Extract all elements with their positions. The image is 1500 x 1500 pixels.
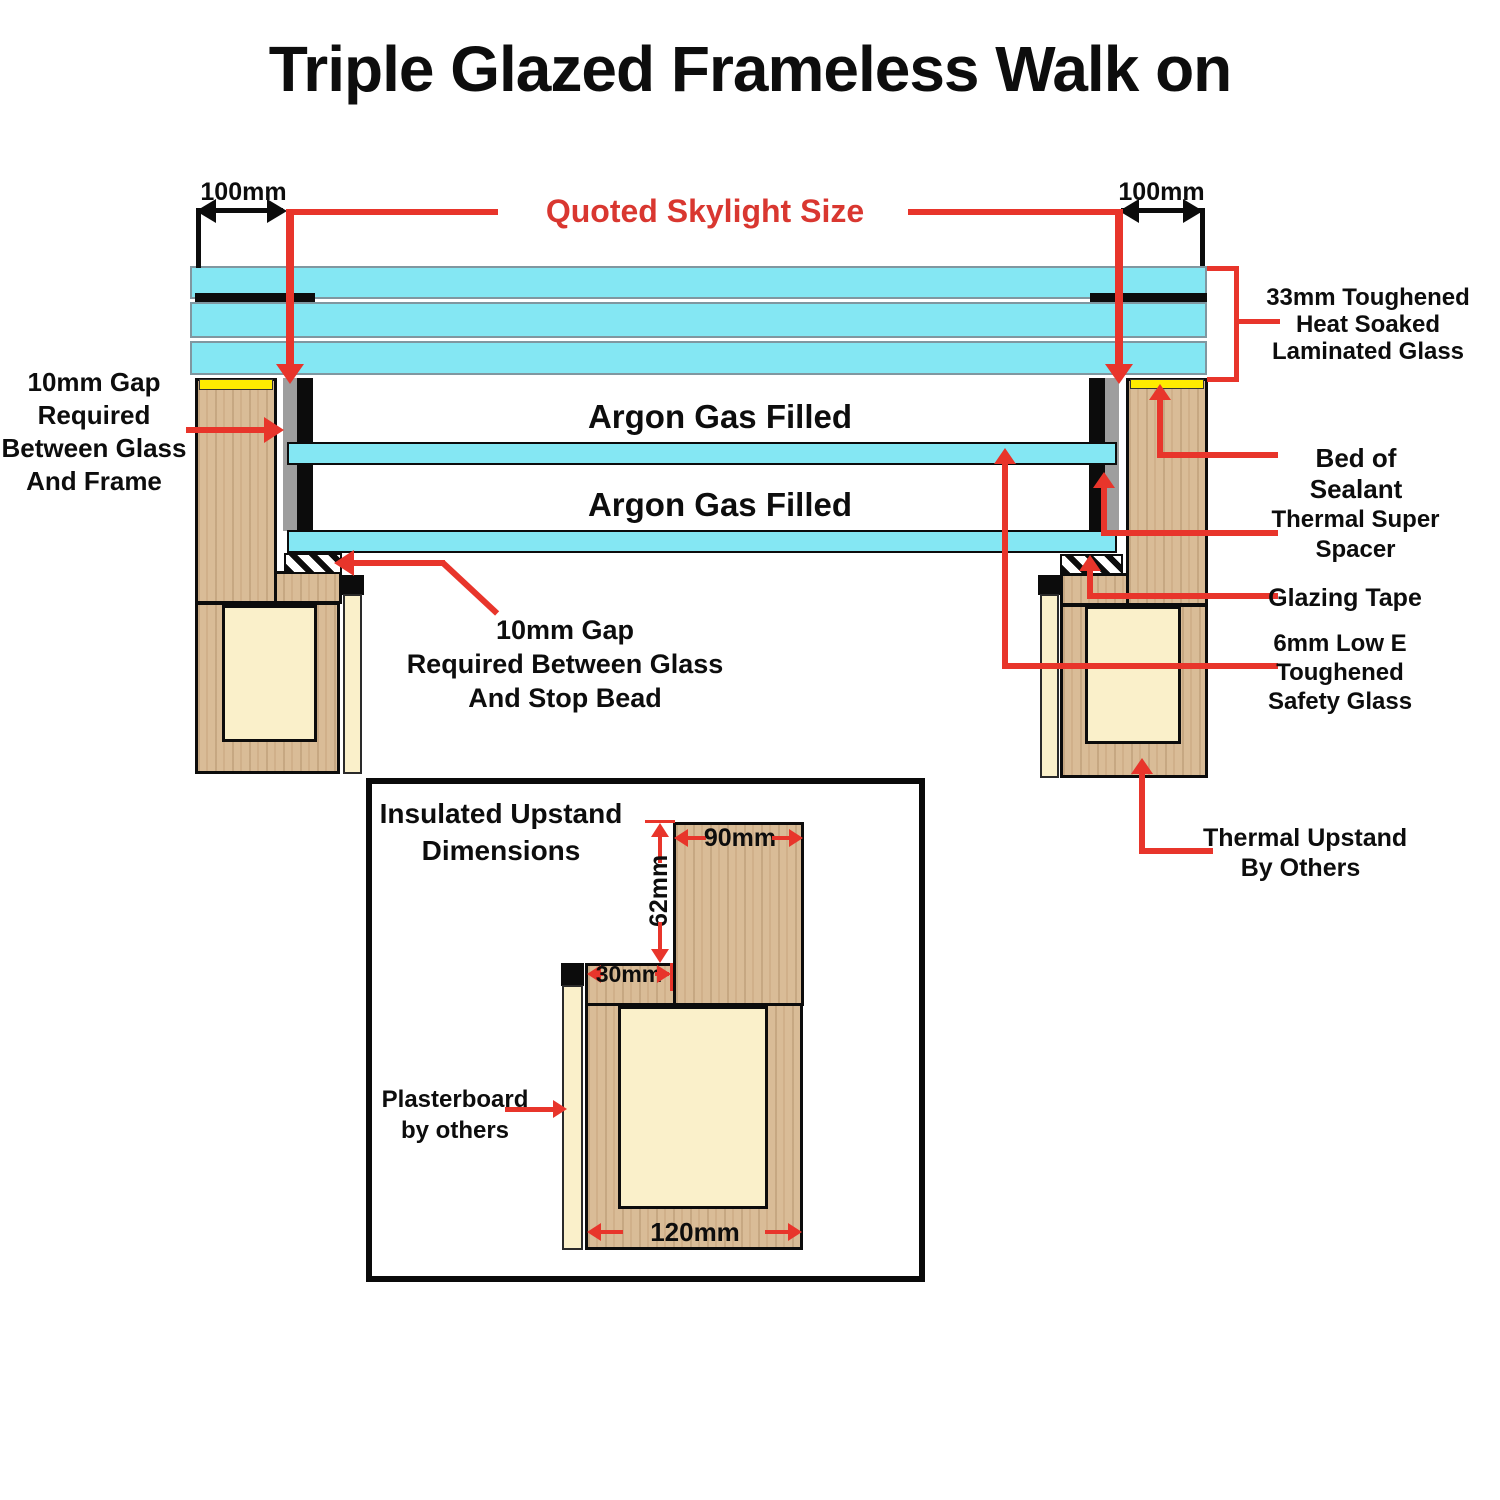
glazing-tape-leader-line bbox=[1087, 593, 1278, 599]
upstand-column-right bbox=[1126, 378, 1208, 606]
quoted-size-line-left bbox=[289, 209, 498, 215]
quoted-size-line-right bbox=[908, 209, 1119, 215]
dim-100-left-tick bbox=[196, 208, 201, 268]
inset-120-arrowhead-right bbox=[788, 1223, 802, 1241]
inset-90-label: 90mm bbox=[699, 824, 781, 853]
middle-glass-pane bbox=[287, 442, 1117, 465]
insulation-left bbox=[222, 605, 317, 742]
glazing-tape-label: Glazing Tape bbox=[1265, 584, 1425, 613]
laminated-pane-1 bbox=[190, 266, 1207, 299]
gap-bead-arrowhead bbox=[334, 550, 354, 576]
inset-plasterboard-arrowhead bbox=[553, 1100, 567, 1118]
dim-100-left-arrowhead-right bbox=[267, 199, 287, 223]
laminated-bracket-vertical bbox=[1234, 266, 1239, 382]
sealant-label: Bed of Sealant bbox=[1276, 443, 1436, 505]
glass-step-right bbox=[1090, 293, 1207, 302]
spacer-arrow-vertical bbox=[1101, 486, 1107, 534]
sealant-leader-line bbox=[1157, 452, 1278, 458]
laminated-pane-2 bbox=[190, 302, 1207, 338]
low-e-arrow-vertical bbox=[1002, 462, 1008, 668]
argon-label-top: Argon Gas Filled bbox=[540, 398, 900, 436]
thermal-upstand-arrow-vertical bbox=[1139, 772, 1145, 854]
inset-30-arrowhead-right bbox=[657, 965, 671, 983]
skylight-cross-section-diagram: Triple Glazed Frameless Walk on Argon Ga… bbox=[0, 0, 1500, 1500]
low-e-leader-line bbox=[1002, 663, 1278, 669]
thermal-upstand-label: Thermal Upstand By Others bbox=[1203, 823, 1398, 883]
gap-frame-arrow-line bbox=[186, 427, 266, 433]
edge-seal-right-upper bbox=[1089, 378, 1105, 442]
laminated-bracket-tick-top bbox=[1207, 266, 1239, 271]
inset-62-label: 62mm bbox=[645, 857, 673, 927]
sealant-arrow-vertical bbox=[1157, 398, 1163, 456]
spacer-leader-line bbox=[1101, 530, 1278, 536]
gap-bead-label: 10mm Gap Required Between Glass And Stop… bbox=[400, 613, 730, 715]
inset-90-arrowhead-right bbox=[789, 829, 803, 847]
stop-bead-right bbox=[1038, 575, 1061, 595]
laminated-pane-3 bbox=[190, 341, 1207, 375]
stop-bead-left bbox=[341, 575, 364, 595]
inset-62-line-lower bbox=[658, 922, 662, 950]
plasterboard-left bbox=[343, 594, 362, 774]
gap-bead-arrow-diagonal bbox=[441, 561, 499, 616]
laminated-label: 33mm Toughened Heat Soaked Laminated Gla… bbox=[1258, 284, 1478, 365]
upstand-column-left bbox=[195, 378, 277, 604]
quoted-drop-arrowhead-left bbox=[276, 364, 304, 384]
spacer-label: Thermal Super Spacer bbox=[1268, 505, 1443, 565]
inset-plasterboard-arrow-line bbox=[505, 1107, 557, 1112]
glass-step-left bbox=[195, 293, 315, 302]
laminated-bracket-tick-bottom bbox=[1207, 377, 1239, 382]
quoted-drop-line-left bbox=[286, 209, 294, 366]
gap-frame-label: 10mm Gap Required Between Glass And Fram… bbox=[0, 366, 188, 498]
inset-insulation bbox=[618, 1006, 768, 1209]
sealant-bed-left bbox=[199, 379, 273, 390]
gap-bead-arrow-line bbox=[352, 560, 445, 566]
thermal-upstand-leader-line bbox=[1139, 848, 1213, 854]
inset-plasterboard-label: Plasterboard by others bbox=[378, 1084, 532, 1146]
edge-seal-left-upper bbox=[297, 378, 313, 442]
inset-stop-bead bbox=[561, 963, 584, 986]
page-title: Triple Glazed Frameless Walk on bbox=[0, 34, 1500, 104]
quoted-size-label: Quoted Skylight Size bbox=[495, 193, 915, 230]
inset-120-label: 120mm bbox=[610, 1217, 780, 1248]
quoted-drop-line-right bbox=[1115, 209, 1123, 366]
bottom-glass-pane bbox=[287, 530, 1117, 553]
dim-100-right-tick bbox=[1200, 208, 1205, 266]
plasterboard-right bbox=[1040, 594, 1059, 778]
argon-label-bottom: Argon Gas Filled bbox=[540, 486, 900, 524]
quoted-drop-arrowhead-right bbox=[1105, 364, 1133, 384]
inset-title: Insulated Upstand Dimensions bbox=[376, 795, 626, 869]
edge-seal-left-lower bbox=[297, 465, 313, 531]
low-e-label: 6mm Low E Toughened Safety Glass bbox=[1255, 629, 1425, 716]
gap-frame-arrowhead bbox=[264, 417, 284, 443]
insulation-right bbox=[1085, 606, 1181, 744]
